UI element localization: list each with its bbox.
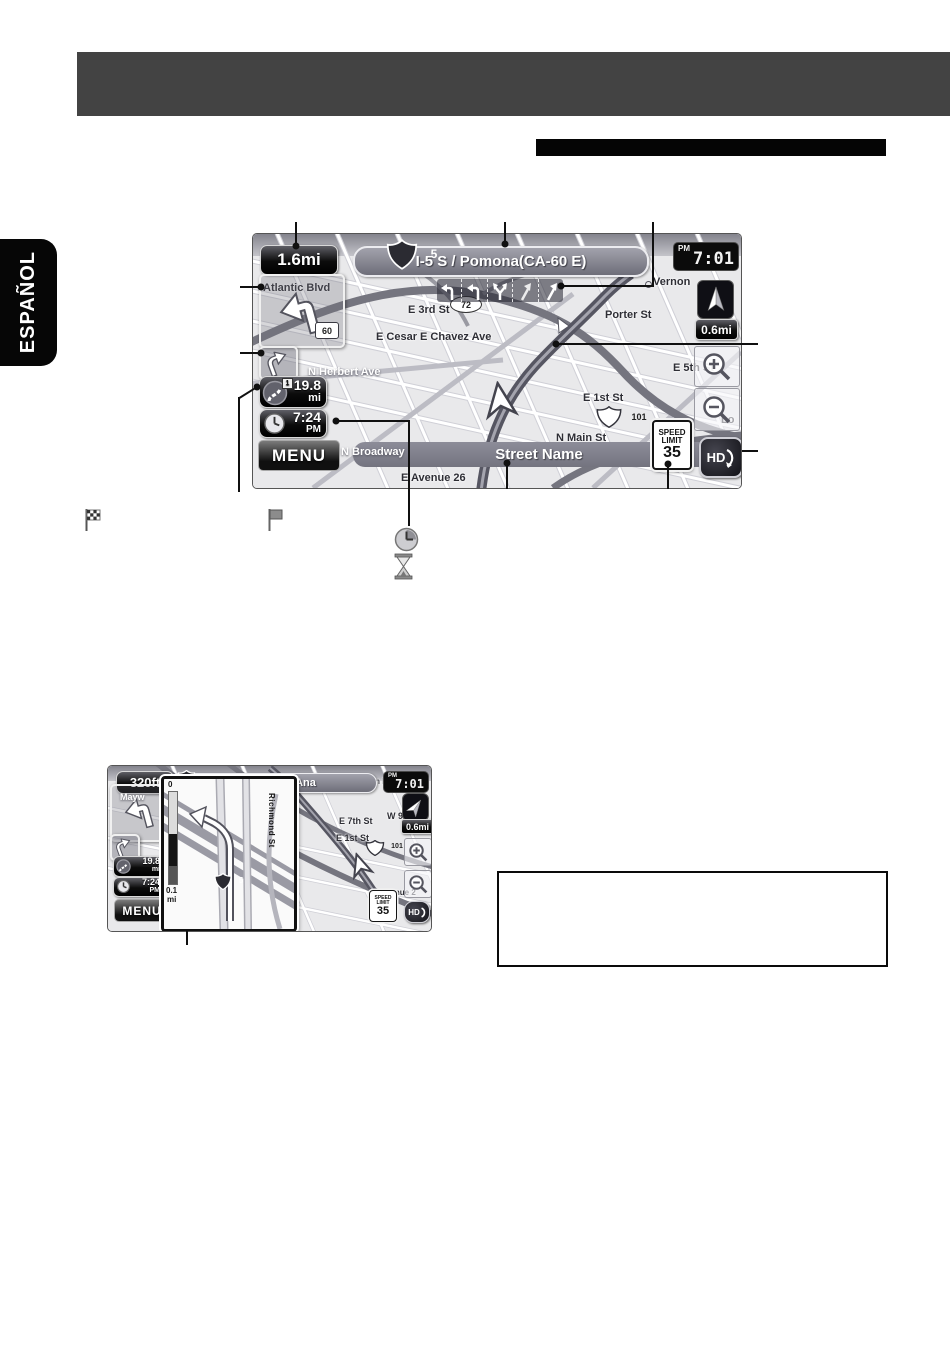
map-scale-badge: 0.6mi: [695, 319, 738, 340]
zoom-in-icon: [408, 842, 429, 863]
menu-button-label: MENU: [272, 446, 326, 466]
zoom-out-icon: [408, 874, 429, 895]
hd-arc-icon: [726, 448, 735, 468]
hd-button-label: HD: [707, 450, 726, 465]
clock-widget: PM 7:01: [383, 771, 429, 793]
lane-slight-right-icon: [513, 279, 538, 302]
speed-limit-value: 35: [663, 445, 681, 461]
arrival-time-value: 7:24: [293, 410, 321, 425]
vehicle-position-icon: [480, 379, 521, 422]
finish-flag-icon: [84, 508, 102, 532]
destination-distance-badge: 19.8 mi: [113, 856, 165, 877]
junction-nav-screenshot: Jefferson Blvd E 7th St W 9th St E 1st S…: [107, 765, 432, 932]
second-turn-box: [259, 346, 298, 380]
clock-widget: PM 7:01: [673, 242, 739, 271]
chapter-header-bar: [77, 52, 950, 116]
hd-radio-button[interactable]: HD: [699, 437, 742, 478]
menu-button-label: MENU: [122, 904, 161, 918]
zoom-in-icon: [701, 351, 733, 383]
zoom-out-button[interactable]: [694, 388, 740, 431]
inset-distance-value: 0.1: [166, 886, 177, 895]
inset-interstate-shield: 5: [214, 873, 232, 890]
map-label-vernon: Vernon: [653, 276, 690, 288]
speed-limit-sign: SPEED LIMIT 35: [369, 890, 397, 922]
zoom-out-button[interactable]: [404, 870, 432, 898]
callout-hd-button: [742, 450, 758, 452]
us101-shield-label: 101: [624, 412, 654, 422]
route-distance-icon: [116, 859, 131, 874]
language-tab-label: ESPAÑOL: [17, 251, 40, 353]
map-label-chavez: E Cesar E Chavez Ave: [376, 331, 491, 343]
arrival-clock-icon: [117, 880, 130, 893]
manual-page: ESPAÑOL: [0, 0, 950, 1351]
destination-distance-badge: 1 19.8 mi: [259, 376, 327, 408]
main-nav-screenshot: Atlantic Blvd E 3rd St E Cesar E Chavez …: [252, 233, 742, 489]
inset-shield-label: 5: [232, 876, 250, 885]
interstate-shield-icon: [386, 238, 418, 271]
hd-radio-button[interactable]: HD: [404, 901, 430, 923]
callout-lane-guidance: [652, 222, 654, 287]
turn-distance-badge: 1.6mi: [260, 245, 338, 275]
map-label-porter: Porter St: [605, 309, 651, 321]
interstate-shield-label: 5: [418, 247, 450, 261]
lane-left-turn-icon: [437, 279, 462, 302]
waypoint-flag-icon: [267, 508, 283, 532]
zoom-in-button[interactable]: [694, 346, 740, 387]
turn-distance-value: 1.6mi: [277, 250, 320, 270]
waypoint-flag-icon: 1: [282, 378, 293, 389]
junction-progress-bar: [168, 791, 178, 885]
junction-zoom-inset: 0 0.1 mi Richmond St 5: [161, 776, 297, 932]
turn-route-shield: 60: [315, 322, 339, 339]
menu-button[interactable]: MENU: [258, 440, 340, 471]
compass-button[interactable]: [697, 280, 734, 319]
map-label-broadway: N Broadway: [341, 446, 405, 458]
clock-period: PM: [678, 244, 690, 253]
us101-shield: 101: [594, 406, 624, 428]
destination-distance-unit: mi: [142, 866, 160, 873]
clock-time: 7:01: [693, 249, 734, 269]
arrival-clock-icon: [264, 413, 285, 434]
map-label-mayw: Mayw: [120, 792, 145, 802]
second-turn-arrow-icon: [263, 348, 294, 379]
hourglass-icon: [394, 553, 413, 580]
map-label-e3rd: E 3rd St: [408, 304, 450, 316]
hd-button-label: HD: [408, 908, 420, 917]
zoom-out-icon: [701, 394, 733, 426]
compass-button[interactable]: [402, 793, 429, 821]
next-turn-box: 60: [259, 274, 345, 348]
zoom-in-button[interactable]: [404, 838, 432, 866]
clock-icon: [394, 527, 419, 552]
inset-bar-top-label: 0: [168, 780, 172, 789]
interstate-shield-icon: [214, 873, 232, 890]
destination-distance-value: 19.8: [142, 857, 160, 866]
turn-route-shield-label: 60: [322, 326, 332, 336]
hd-arc-icon: [421, 907, 426, 918]
lane-left-turn-icon: [462, 279, 487, 302]
compass-needle-icon: [403, 794, 429, 821]
map-scale-value: 0.6mi: [406, 822, 429, 832]
speed-limit-value: 35: [377, 906, 389, 917]
language-tab: ESPAÑOL: [0, 239, 57, 366]
inset-street-label: Richmond St: [267, 793, 276, 848]
map-scale-badge: 0.6mi: [401, 819, 432, 834]
map-scale-value: 0.6mi: [701, 323, 732, 337]
interstate-shield: 5: [386, 238, 418, 271]
clock-time: 7:01: [395, 777, 424, 791]
inset-distance-unit: mi: [167, 895, 176, 904]
map-label-e7th: E 7th St: [339, 816, 373, 826]
destination-distance-value: 19.8: [294, 378, 321, 393]
lane-fork-icon: [488, 279, 513, 302]
lane-guidance-bar: [437, 279, 563, 302]
route-shield-icon: [594, 406, 624, 428]
compass-needle-icon: [704, 285, 728, 314]
arrival-time-period: PM: [142, 887, 160, 894]
map-label-e1st: E 1st St: [583, 392, 623, 404]
section-title-bar: [536, 139, 886, 156]
arrival-time-badge: 7:24 PM: [113, 877, 165, 897]
destination-distance-unit: mi: [294, 393, 321, 405]
map-label-ave26: E Avenue 26: [401, 472, 466, 484]
arrival-time-period: PM: [293, 425, 321, 436]
arrival-time-badge: 7:24 PM: [259, 409, 327, 438]
speed-limit-sign: SPEED LIMIT 35: [652, 420, 692, 470]
note-box: [497, 871, 888, 967]
arrival-time-value: 7:24: [142, 878, 160, 887]
